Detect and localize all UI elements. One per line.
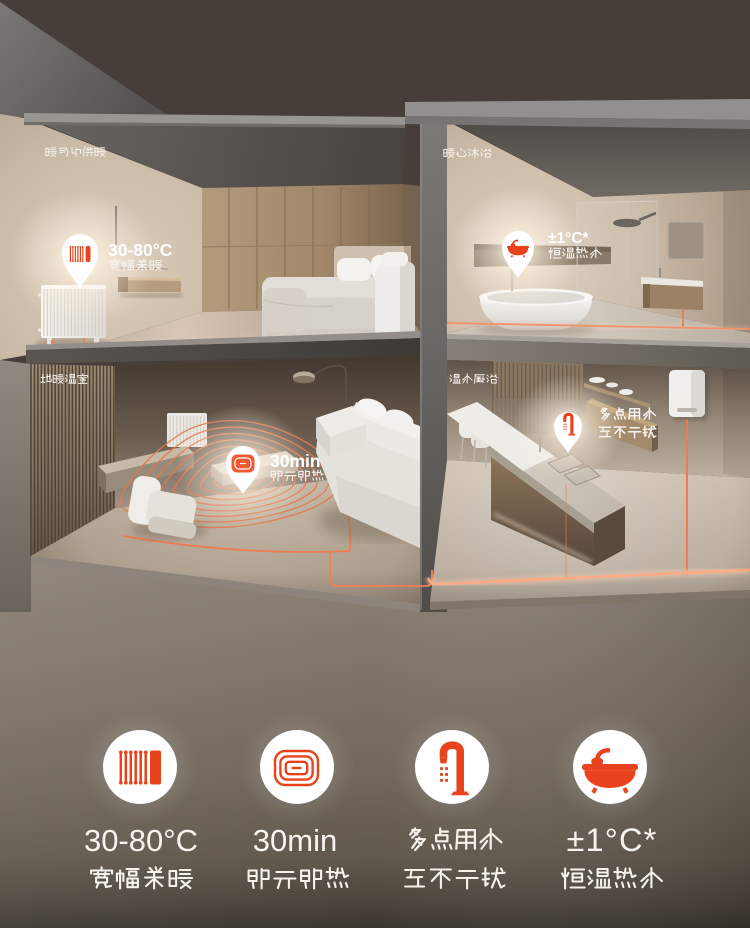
svg-text:±1°C*: ±1°C* [566,822,657,858]
svg-text:30-80°C: 30-80°C [108,240,173,260]
svg-text:30min: 30min [270,451,321,471]
svg-text:30-80°C: 30-80°C [84,823,198,858]
svg-text:±1°C*: ±1°C* [548,230,590,247]
svg-text:30min: 30min [253,823,337,858]
